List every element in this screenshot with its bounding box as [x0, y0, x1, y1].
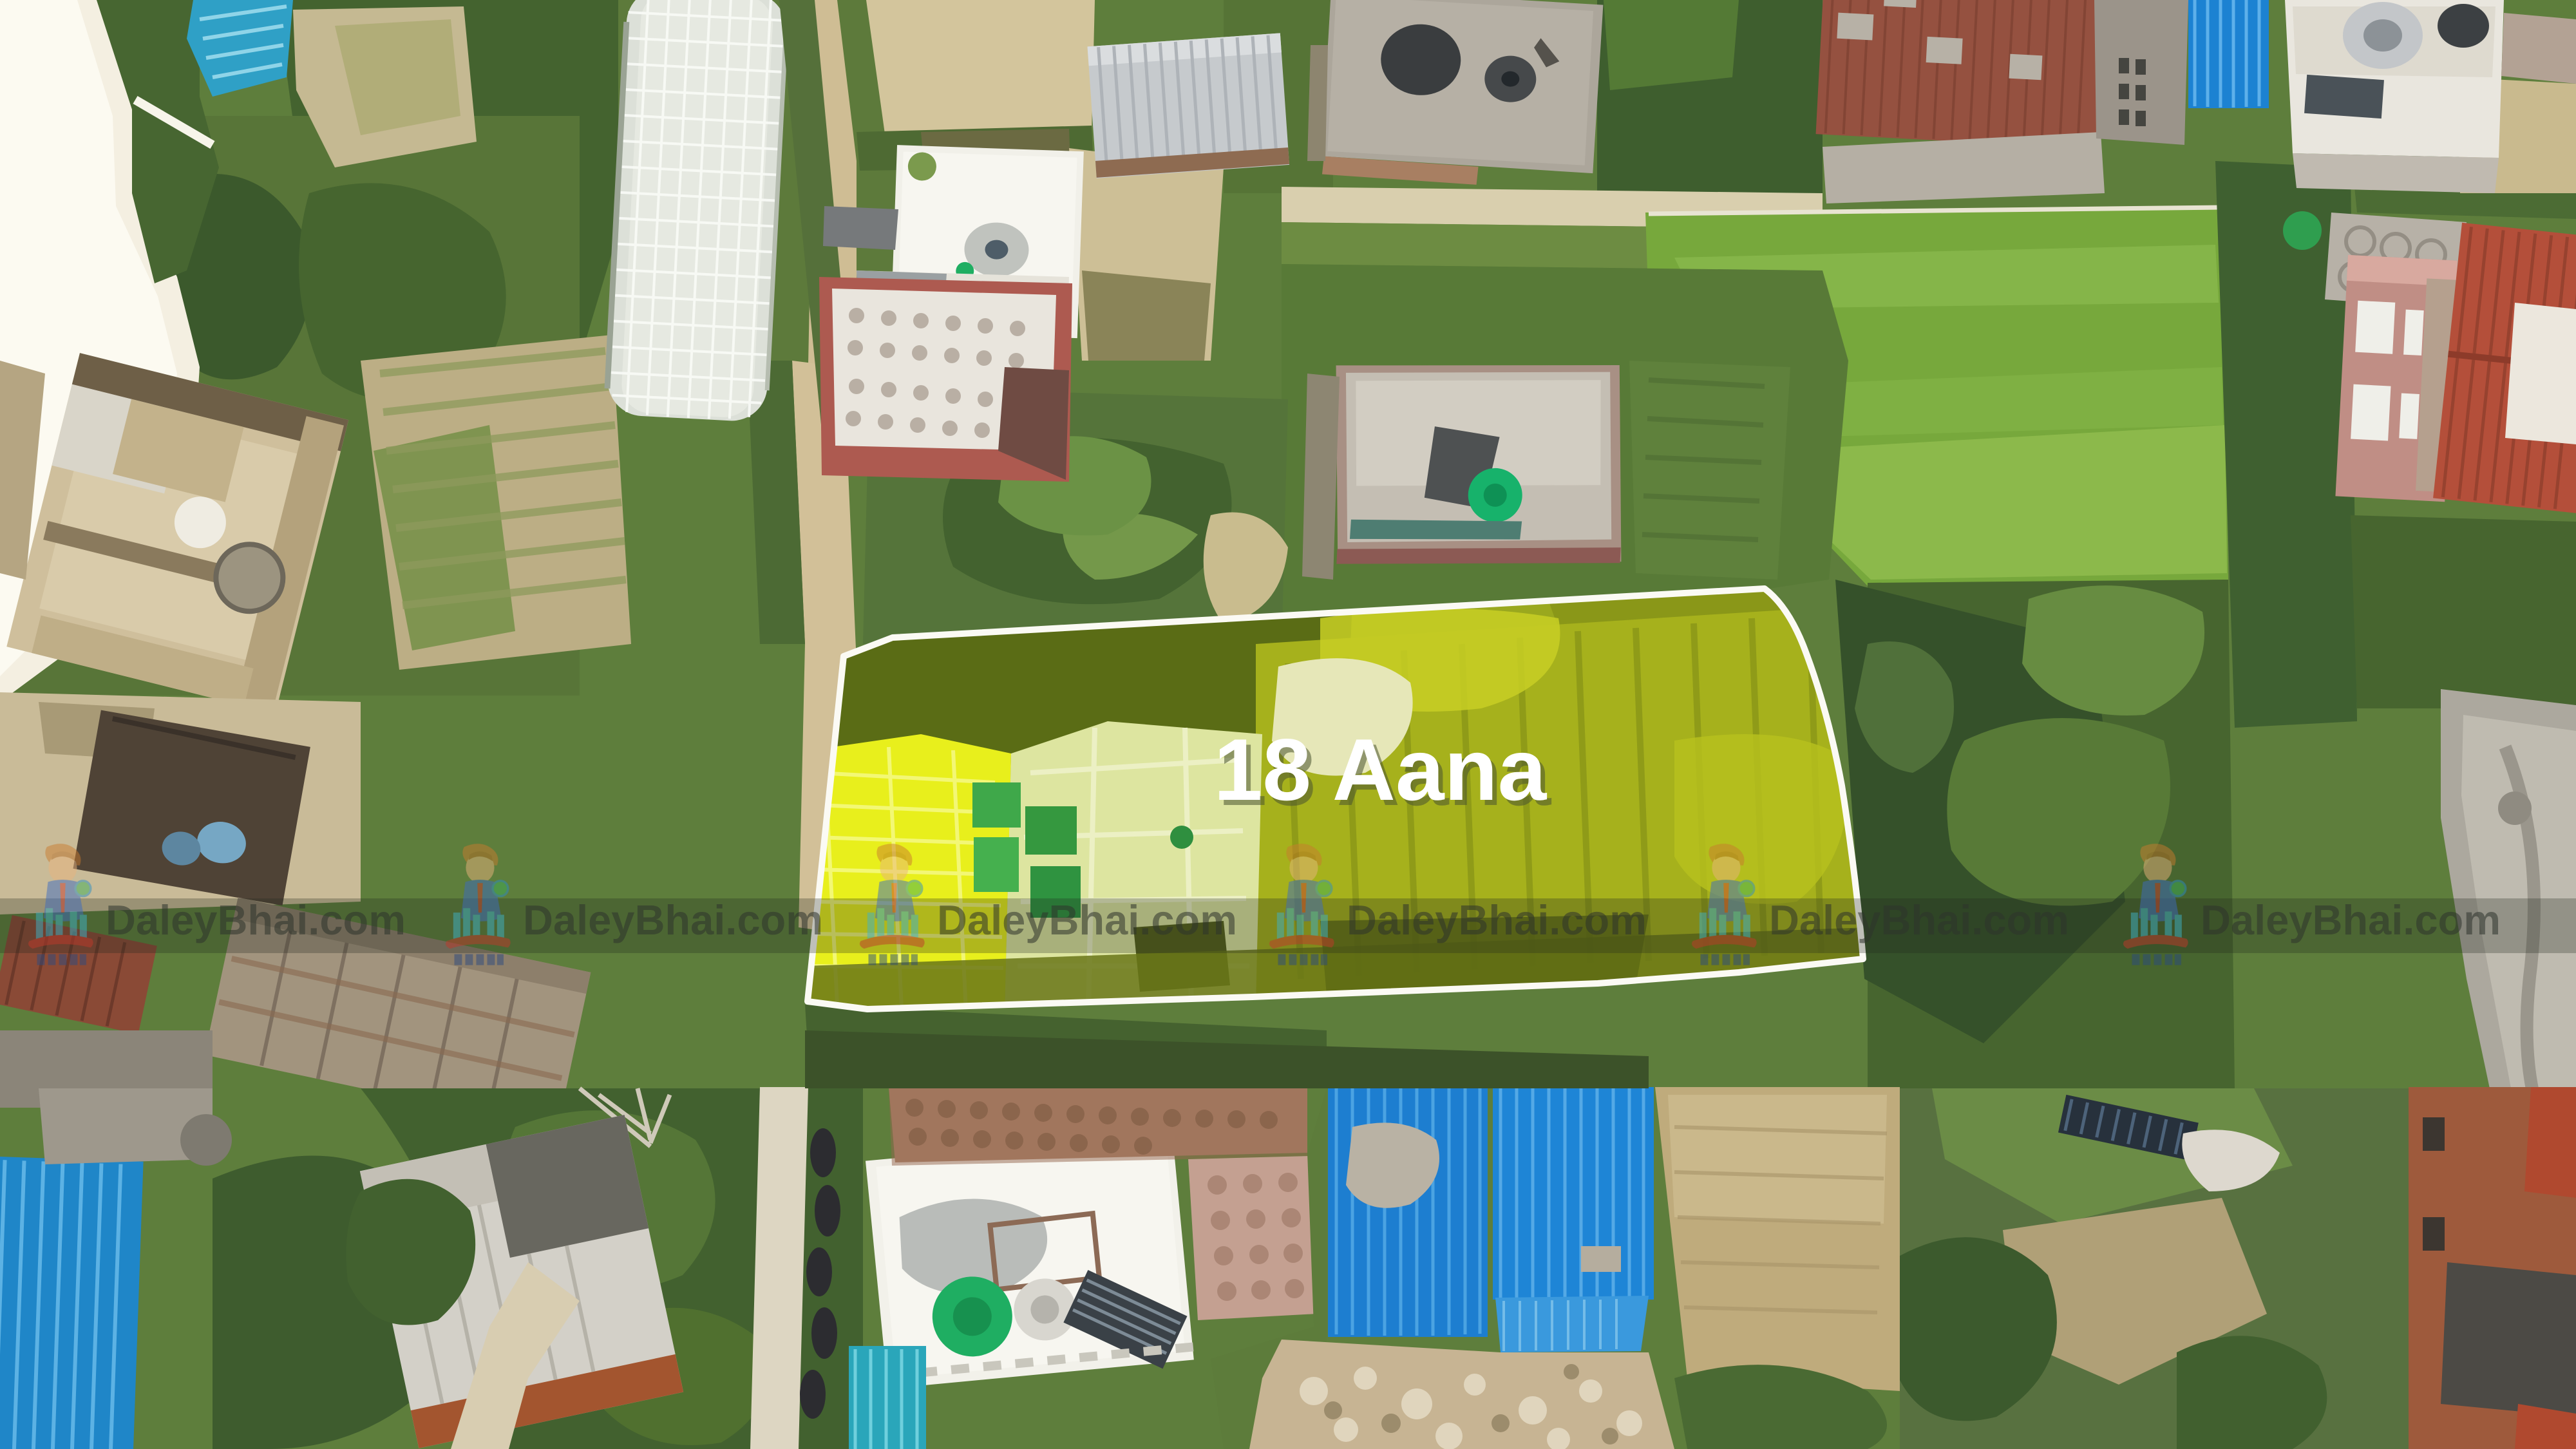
svg-text:DaleyBhai.com: DaleyBhai.com: [106, 896, 406, 943]
svg-text:DaleyBhai.com: DaleyBhai.com: [523, 896, 823, 943]
svg-text:DaleyBhai.com: DaleyBhai.com: [1769, 896, 2069, 943]
svg-text:18 Aana: 18 Aana: [1214, 721, 1548, 819]
svg-text:DaleyBhai.com: DaleyBhai.com: [1347, 896, 1647, 943]
svg-text:DaleyBhai.com: DaleyBhai.com: [937, 896, 1237, 943]
svg-text:DaleyBhai.com: DaleyBhai.com: [2201, 896, 2501, 943]
